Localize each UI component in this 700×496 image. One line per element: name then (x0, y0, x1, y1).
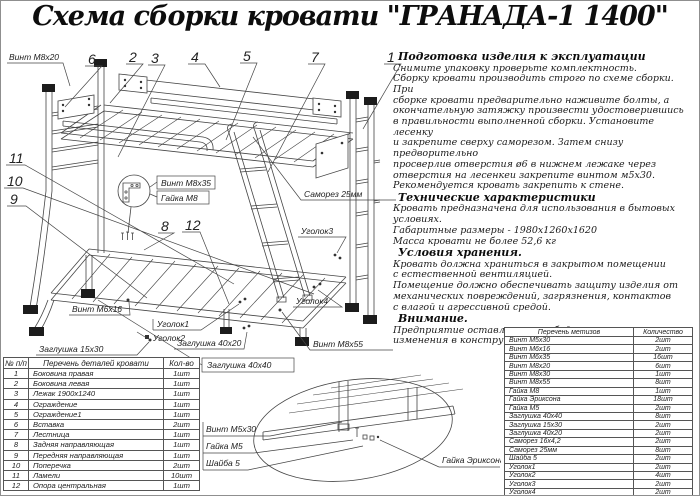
callout-10: 10 (7, 173, 23, 189)
parts-table-header: № п/п Перечень деталей кровати Кол-во (4, 358, 200, 369)
attention-heading: Внимание. (393, 313, 695, 326)
text-line: механических повреждений, загрязнения, к… (393, 292, 695, 303)
table-row: Винт М5х302шт (505, 337, 693, 345)
table-row: 10Поперечка2шт (4, 460, 200, 470)
table-row: 1Боковина правая1шт (4, 369, 200, 379)
table-row: Саморез 16х4,22шт (505, 438, 693, 446)
callout-12: 12 (185, 217, 201, 233)
specs-body: Кровать предназначена для использования … (393, 204, 695, 247)
callout-7: 7 (311, 49, 320, 65)
label-vint-m8x20: Винт М8х20 (9, 52, 59, 62)
label-ugolok1: Уголок1 (156, 319, 189, 329)
table-row: 3Лежак 1900х12401шт (4, 389, 200, 399)
parts-col-name: Перечень деталей кровати (29, 358, 164, 369)
callout-9: 9 (10, 191, 18, 207)
callout-11: 11 (9, 150, 24, 166)
text-line: и закрепите сверху саморезом. Затем сниз… (393, 138, 695, 159)
table-row: 2Боковина левая1шт (4, 379, 200, 389)
table-row: Уголок42шт (505, 488, 693, 496)
callout-8: 8 (161, 218, 169, 234)
table-row: Шайба 52шт (505, 455, 693, 463)
table-row: 8Задняя направляющая1шт (4, 440, 200, 450)
parts-col-num: № п/п (4, 358, 29, 369)
callout-4: 4 (191, 49, 199, 65)
table-row: Заглушка 40х408шт (505, 412, 693, 420)
label-vint-m6x16: Винт М6х16 (72, 304, 122, 314)
instructions-panel: Подготовка изделия к эксплуатации Снимит… (393, 51, 695, 347)
storage-heading: Условия хранения. (393, 247, 695, 260)
table-row: Винт М8х558шт (505, 379, 693, 387)
label-shayba-5: Шайба 5 (206, 458, 240, 468)
label-zaglushka-40x40: Заглушка 40х40 (207, 360, 272, 370)
label-samorez-25: Саморез 25мм (304, 189, 362, 199)
table-row: 5Ограждение11шт (4, 409, 200, 419)
table-row: Уголок24шт (505, 472, 693, 480)
callout-2: 2 (128, 49, 137, 65)
table-row: Винт М8х301шт (505, 370, 693, 378)
table-row: Саморез 25мм8шт (505, 446, 693, 454)
text-line: в правильности выполненной сборки. Устан… (393, 117, 695, 138)
table-row: 4Ограждение1шт (4, 399, 200, 409)
callout-5: 5 (243, 48, 251, 64)
hardware-col-qty: Количество (634, 328, 693, 337)
hardware-table: Перечень метизов Количество Винт М5х302ш… (504, 327, 693, 496)
callout-3: 3 (151, 50, 159, 66)
table-row: Винт М6х162шт (505, 345, 693, 353)
label-vint-m8x55: Винт М8х55 (313, 339, 363, 349)
bracket-detail-circle (118, 175, 150, 240)
table-row: Винт М6х3516шт (505, 353, 693, 361)
table-row: 7Лестница1шт (4, 430, 200, 440)
parts-col-qty: Кол-во (164, 358, 200, 369)
table-row: Гайка М81шт (505, 387, 693, 395)
label-vint-m5x30: Винт М5х30 (206, 424, 256, 434)
prep-heading: Подготовка изделия к эксплуатации (393, 51, 695, 64)
label-zaglushka-15x30: Заглушка 15х30 (39, 344, 104, 354)
prep-body: Снимите упаковку проверьте комплектность… (393, 64, 695, 192)
table-row: Уголок12шт (505, 463, 693, 471)
ladder-fixing-detail (247, 367, 463, 494)
label-gayka-m5: Гайка М5 (206, 441, 243, 451)
label-ugolok4: Уголок4 (295, 296, 328, 306)
table-row: Гайка М52шт (505, 404, 693, 412)
label-gayka-eriksona: Гайка Эриксона (442, 455, 501, 465)
table-row: 12Опора центральная1шт (4, 481, 200, 491)
storage-body: Кровать должна храниться в закрытом поме… (393, 260, 695, 314)
label-vint-m8x35: Винт М8х35 (161, 178, 211, 188)
text-line: Габаритные размеры - 1980х1260х1620 (393, 226, 695, 237)
table-row: 6Вставка2шт (4, 419, 200, 429)
table-row: 11Ламели10шт (4, 470, 200, 480)
table-row: 9Передняя направляющая1шт (4, 450, 200, 460)
table-row: Заглушка 40х202шт (505, 429, 693, 437)
hardware-col-name: Перечень метизов (505, 328, 634, 337)
parts-table: № п/п Перечень деталей кровати Кол-во 1Б… (3, 357, 200, 491)
hardware-table-header: Перечень метизов Количество (505, 328, 693, 337)
table-row: Заглушка 15х302шт (505, 421, 693, 429)
text-line: Сборку кровати производить строго по схе… (393, 74, 695, 95)
assembly-sheet: Схема сборки кровати "ГРАНАДА-1 1400" (0, 0, 700, 496)
callout-6: 6 (88, 51, 96, 67)
label-ugolok3: Уголок3 (300, 226, 333, 236)
label-gayka-m8: Гайка М8 (161, 193, 198, 203)
table-row: Уголок32шт (505, 480, 693, 488)
table-row: Гайка Эриксона18шт (505, 396, 693, 404)
text-line: просверлив отверстия ø6 в нижнем лежаке … (393, 160, 695, 171)
label-zaglushka-40x20: Заглушка 40х20 (177, 338, 242, 348)
page-title: Схема сборки кровати "ГРАНАДА-1 1400" (1, 1, 699, 32)
table-row: Винт М8х206шт (505, 362, 693, 370)
